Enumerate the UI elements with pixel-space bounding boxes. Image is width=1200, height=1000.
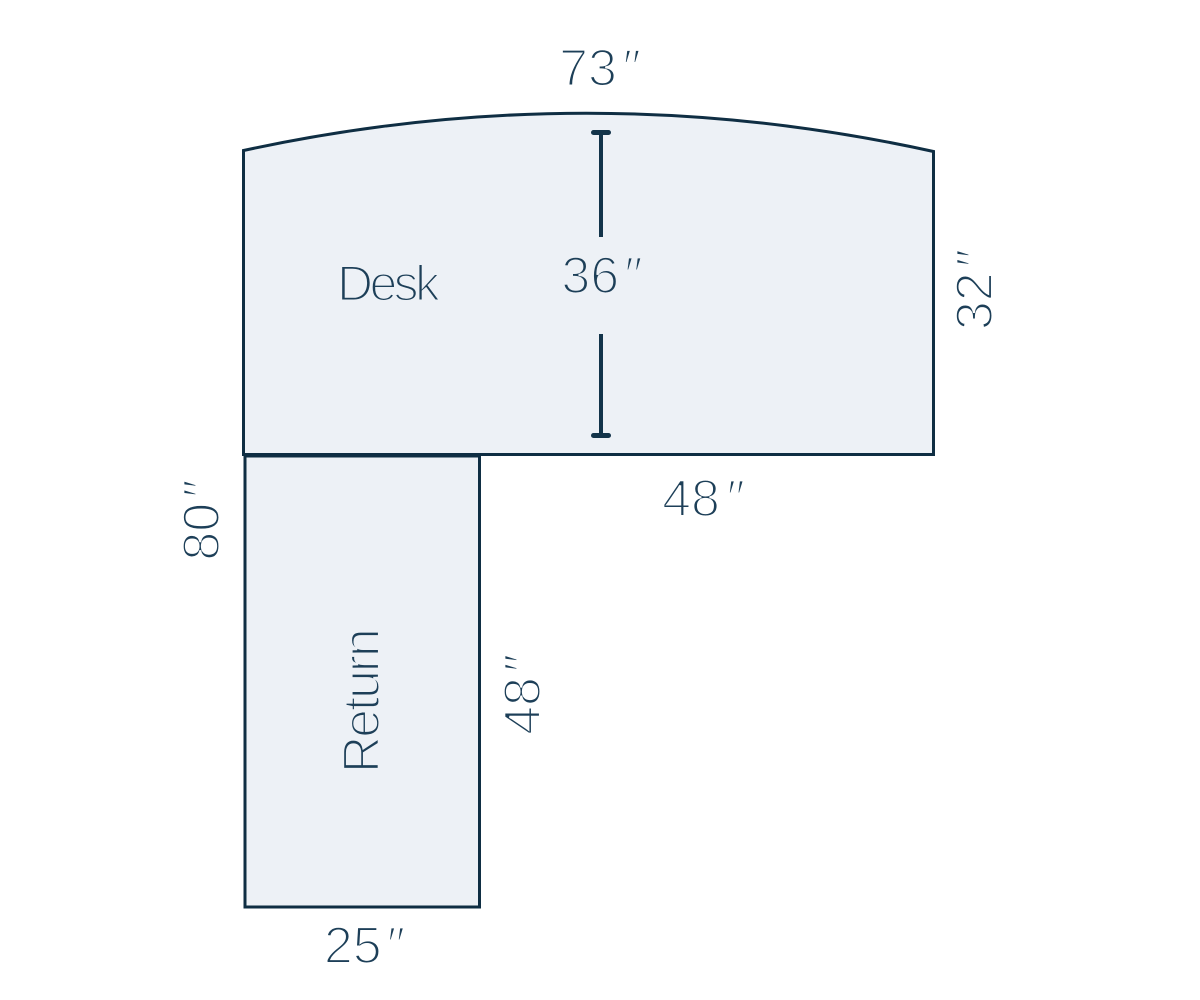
svg-text:48″: 48″ — [662, 470, 745, 528]
svg-text:Desk: Desk — [337, 256, 441, 312]
svg-text:32″: 32″ — [946, 249, 1004, 330]
svg-text:36″: 36″ — [561, 247, 642, 305]
svg-text:73″: 73″ — [559, 40, 641, 98]
svg-text:Return: Return — [333, 628, 391, 773]
svg-text:48″: 48″ — [494, 654, 552, 735]
svg-text:80″: 80″ — [173, 479, 231, 560]
svg-text:25″: 25″ — [324, 917, 405, 975]
